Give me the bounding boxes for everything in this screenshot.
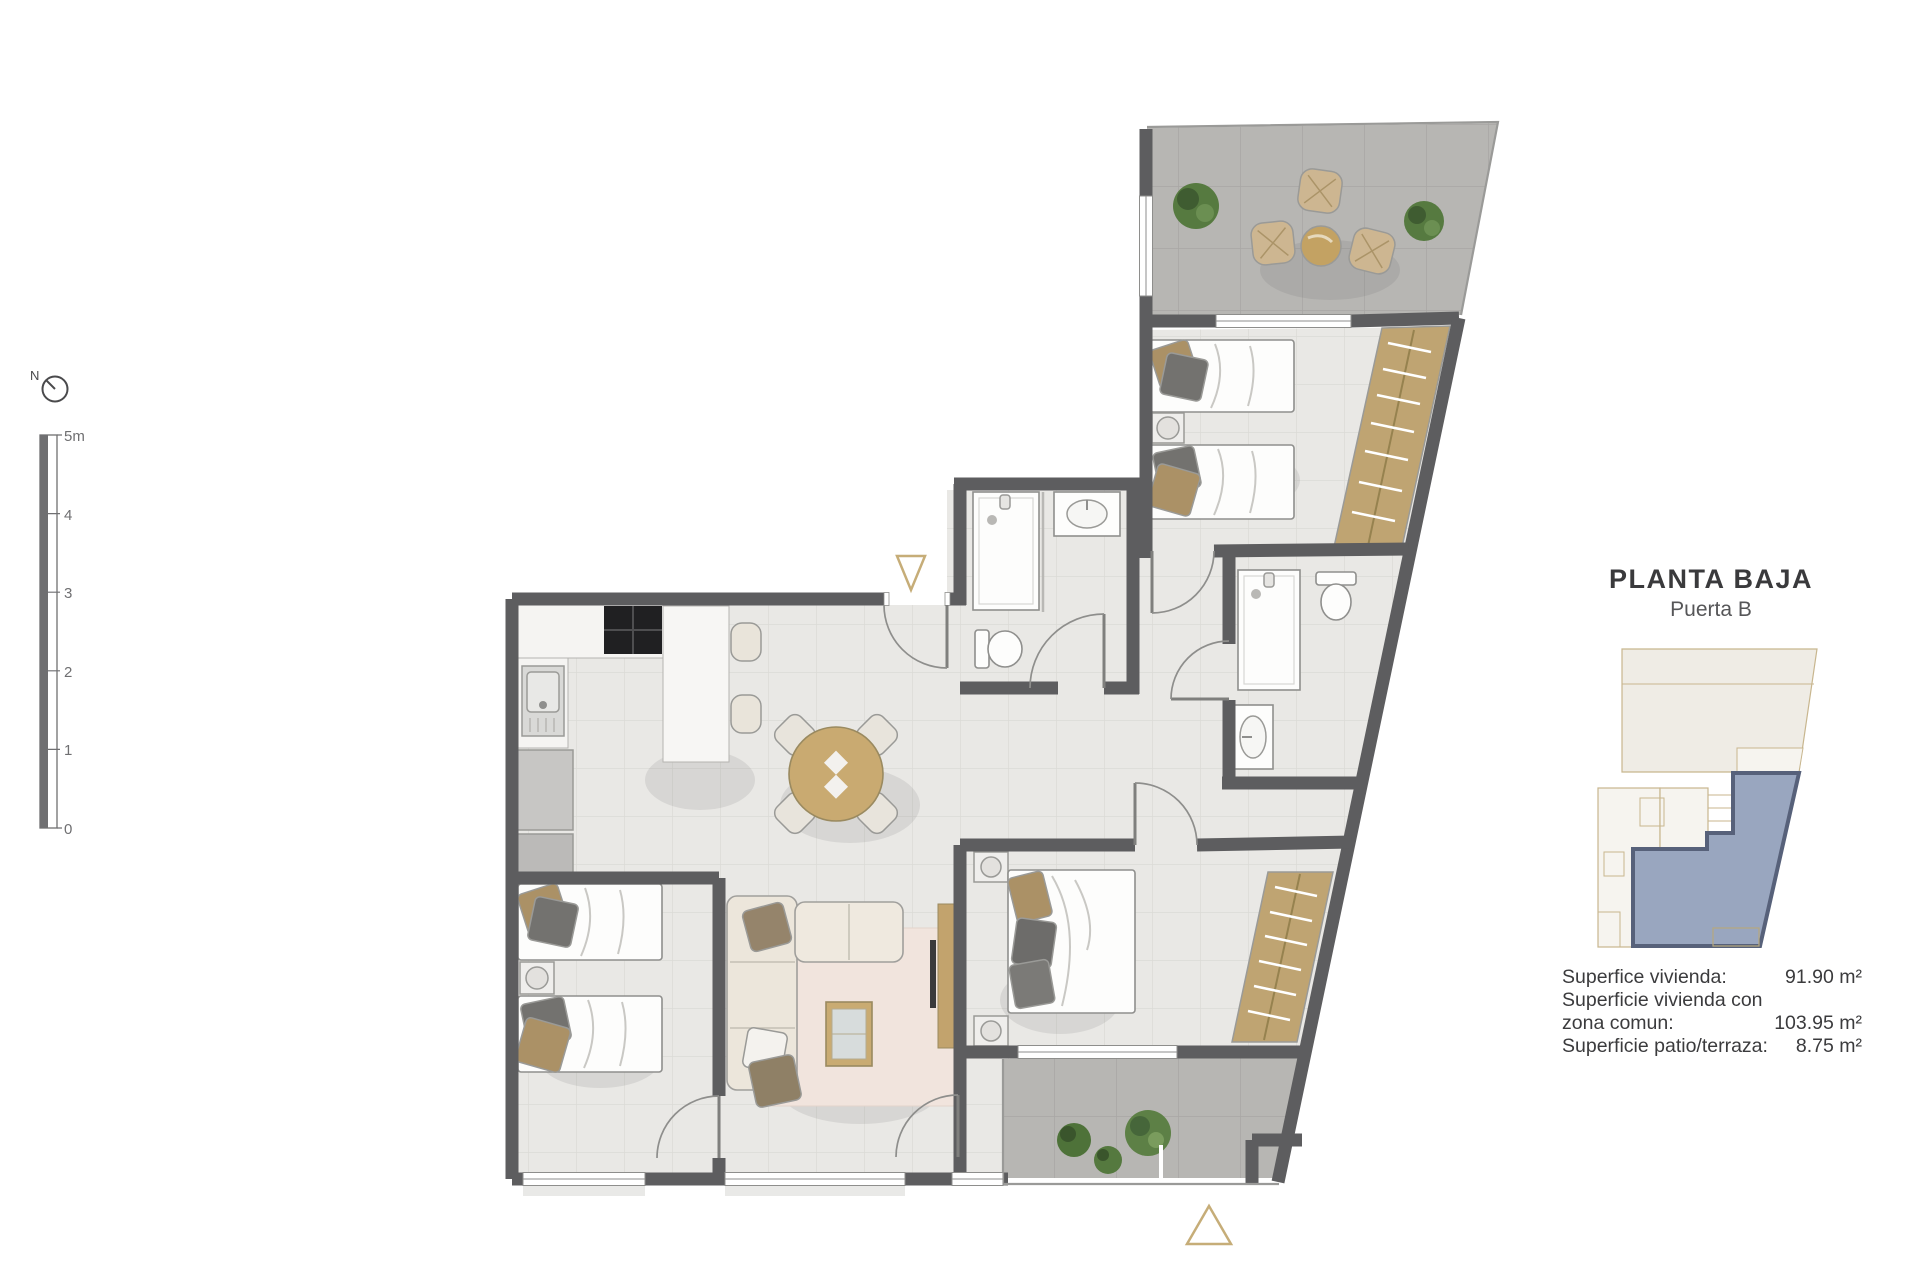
double-bed [1007, 870, 1135, 1013]
area-row-label: Superfice vivienda: [1562, 966, 1727, 988]
sink [1054, 492, 1120, 536]
fridge [517, 750, 573, 830]
dining-set [771, 711, 901, 837]
svg-text:N: N [30, 368, 39, 383]
shower [973, 492, 1043, 612]
shower [1238, 570, 1300, 690]
sink [1233, 705, 1273, 769]
coffee-table [826, 1002, 872, 1066]
scale-tick-label: 4 [64, 507, 72, 524]
window [725, 1173, 905, 1186]
area-row-label: Superficie patio/terraza: [1562, 1035, 1768, 1057]
cooktop [604, 606, 662, 654]
area-row-label: Superficie vivienda con [1562, 989, 1763, 1011]
window [523, 1173, 645, 1186]
info-panel: PLANTA BAJA Puerta B Superfice vivienda:… [1562, 564, 1863, 1057]
plant [1404, 201, 1444, 241]
kitchen-sink [522, 666, 564, 736]
plant [1173, 183, 1219, 229]
toilet [975, 630, 1022, 668]
window-sill [725, 1186, 905, 1196]
patio-door [952, 1173, 1003, 1186]
nightstand [974, 1016, 1008, 1046]
plan-subtitle: Puerta B [1670, 598, 1752, 621]
plant [1094, 1146, 1122, 1174]
scale-tick-label: 5m [64, 428, 85, 445]
scale-tick-label: 0 [64, 821, 72, 838]
plant [1057, 1123, 1091, 1157]
area-row-value: 103.95 m² [1774, 1012, 1862, 1034]
area-table: Superfice vivienda: 91.90 m² Superficie … [1562, 966, 1863, 1057]
area-row-label: zona comun: [1562, 1012, 1674, 1034]
scale-tick-label: 1 [64, 742, 72, 759]
window [1140, 196, 1153, 296]
area-row-value: 8.75 m² [1796, 1035, 1863, 1057]
single-bed [1147, 445, 1294, 519]
sofa-pillow [748, 1054, 803, 1109]
room-living [727, 896, 956, 1108]
single-bed [515, 996, 662, 1074]
outdoor-pouf [1250, 220, 1296, 266]
entry-marker-top-icon [897, 556, 925, 590]
single-bed [1149, 339, 1294, 412]
plant [1125, 1110, 1171, 1156]
nightstand [520, 962, 554, 994]
outdoor-pouf [1296, 167, 1343, 214]
area-row-value: 91.90 m² [1785, 966, 1862, 988]
tv [930, 940, 936, 1008]
window-sill [523, 1186, 645, 1196]
single-bed [517, 883, 662, 960]
north-compass-icon: N [30, 368, 68, 402]
bar-stool [731, 695, 761, 733]
bar-stool [731, 623, 761, 661]
kitchen-island [663, 606, 729, 762]
window [1018, 1046, 1177, 1059]
nightstand [1152, 413, 1184, 443]
scale-tick-label: 3 [64, 585, 72, 602]
location-minimap [1598, 649, 1817, 947]
window [1216, 315, 1351, 328]
plan-title: PLANTA BAJA [1609, 564, 1813, 594]
floor-plan-canvas: N 5m 4 3 2 1 0 PLANTA BAJA Puerta B [0, 0, 1920, 1280]
entry-marker-bottom-icon [1187, 1206, 1231, 1244]
scale-tick-label: 2 [64, 664, 72, 681]
scale-bar: 5m 4 3 2 1 0 [40, 428, 85, 838]
nightstand [974, 852, 1008, 882]
outdoor-table [1301, 226, 1341, 266]
